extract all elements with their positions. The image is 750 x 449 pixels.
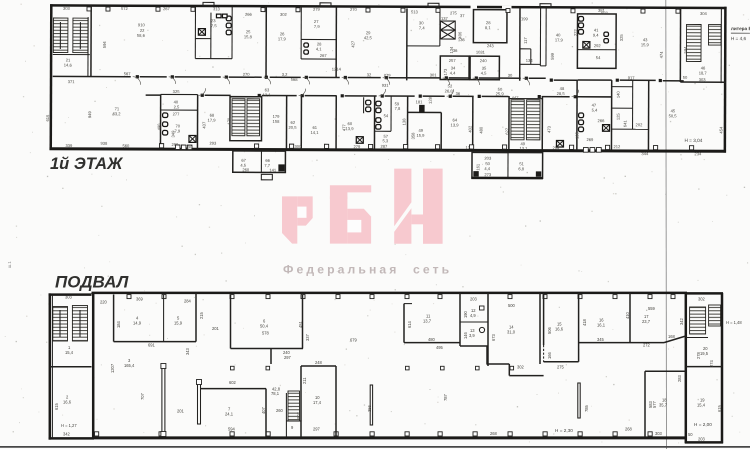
svg-text:277: 277 — [173, 111, 181, 116]
svg-text:13,9: 13,9 — [346, 126, 355, 131]
svg-text:140: 140 — [616, 91, 621, 99]
svg-text:50: 50 — [688, 432, 693, 437]
svg-text:ПОДВАЛ: ПОДВАЛ — [55, 273, 129, 292]
svg-text:473: 473 — [547, 125, 552, 133]
svg-text:17,9: 17,9 — [208, 118, 217, 123]
svg-text:4,1: 4,1 — [316, 47, 322, 52]
svg-text:297: 297 — [313, 427, 321, 432]
svg-text:13,7: 13,7 — [423, 319, 432, 324]
svg-text:201: 201 — [212, 326, 220, 331]
svg-text:949: 949 — [87, 111, 92, 119]
svg-text:304: 304 — [700, 11, 708, 16]
svg-text:201: 201 — [177, 409, 185, 414]
svg-text:275: 275 — [557, 365, 565, 370]
svg-text:16,6: 16,6 — [63, 400, 72, 405]
svg-text:477: 477 — [342, 124, 347, 132]
svg-text:Федеральная: Федеральная — [283, 263, 400, 277]
svg-text:Н = 2,30: Н = 2,30 — [555, 428, 573, 433]
svg-text:474: 474 — [659, 51, 664, 59]
svg-text:931: 931 — [382, 83, 390, 88]
svg-text:917: 917 — [628, 75, 636, 80]
svg-text:615: 615 — [54, 402, 59, 410]
svg-text:168: 168 — [668, 334, 676, 339]
svg-text:50,5: 50,5 — [669, 113, 678, 118]
svg-text:199: 199 — [521, 16, 529, 21]
svg-text:18,7: 18,7 — [699, 70, 708, 75]
svg-text:437: 437 — [202, 121, 207, 129]
svg-text:614: 614 — [407, 320, 412, 328]
svg-text:260: 260 — [276, 408, 284, 413]
svg-text:158: 158 — [273, 119, 281, 124]
svg-text:166: 166 — [547, 351, 552, 359]
svg-text:278: 278 — [696, 351, 701, 359]
svg-text:560: 560 — [122, 143, 130, 148]
svg-text:7,5: 7,5 — [211, 23, 217, 28]
svg-text:337: 337 — [305, 333, 310, 341]
svg-text:599: 599 — [550, 52, 555, 60]
svg-text:17,9: 17,9 — [278, 36, 287, 41]
svg-text:325: 325 — [619, 34, 624, 42]
svg-text:500: 500 — [508, 303, 516, 308]
svg-text:300: 300 — [294, 144, 302, 149]
svg-text:267: 267 — [320, 53, 328, 58]
svg-text:572: 572 — [121, 6, 129, 11]
svg-text:402: 402 — [468, 125, 473, 133]
svg-text:5,4: 5,4 — [592, 108, 598, 113]
svg-text:Н = 3,04: Н = 3,04 — [684, 138, 702, 143]
svg-text:292: 292 — [594, 43, 602, 48]
svg-text:356: 356 — [367, 404, 372, 412]
svg-text:13,9: 13,9 — [451, 123, 460, 128]
svg-text:594: 594 — [228, 427, 236, 432]
svg-text:615: 615 — [45, 114, 50, 122]
svg-text:345: 345 — [597, 337, 605, 342]
svg-text:454: 454 — [719, 126, 724, 134]
svg-text:1031: 1031 — [476, 50, 486, 55]
svg-text:240: 240 — [480, 58, 488, 63]
svg-text:691: 691 — [148, 343, 156, 348]
svg-text:16,1: 16,1 — [597, 323, 606, 328]
svg-text:447: 447 — [512, 95, 520, 100]
svg-text:202: 202 — [636, 122, 644, 127]
svg-text:190: 190 — [463, 310, 468, 318]
svg-text:1214: 1214 — [332, 67, 342, 72]
svg-text:303: 303 — [63, 6, 71, 11]
svg-text:195: 195 — [574, 131, 579, 139]
svg-text:451: 451 — [298, 320, 303, 328]
svg-text:146: 146 — [463, 331, 468, 339]
svg-text:7,8: 7,8 — [395, 106, 401, 111]
svg-text:20,5: 20,5 — [289, 125, 298, 130]
svg-text:173: 173 — [443, 68, 448, 76]
svg-text:литера Б: литера Б — [731, 26, 750, 31]
svg-text:222: 222 — [573, 28, 578, 36]
svg-text:1й ЭТАЖ: 1й ЭТАЖ — [50, 155, 124, 173]
svg-text:301: 301 — [430, 72, 438, 77]
svg-text:Н = 1,48: Н = 1,48 — [726, 320, 742, 325]
svg-text:Н = 2,00: Н = 2,00 — [694, 422, 712, 427]
svg-text:4,4: 4,4 — [450, 71, 456, 76]
svg-text:371: 371 — [68, 79, 76, 84]
svg-text:14,9: 14,9 — [133, 321, 142, 326]
svg-text:268: 268 — [625, 427, 633, 432]
svg-text:293: 293 — [209, 141, 217, 146]
svg-text:117: 117 — [523, 37, 528, 44]
svg-text:274: 274 — [709, 359, 714, 367]
svg-text:290: 290 — [185, 145, 193, 150]
svg-text:54: 54 — [596, 55, 601, 60]
svg-text:303: 303 — [65, 295, 73, 300]
svg-text:63,2: 63,2 — [113, 111, 122, 116]
svg-text:3,2: 3,2 — [282, 72, 288, 77]
svg-text:270: 270 — [350, 7, 358, 12]
svg-text:297: 297 — [284, 355, 292, 360]
svg-text:272: 272 — [643, 343, 651, 348]
svg-text:284: 284 — [184, 298, 192, 303]
svg-text:23,7: 23,7 — [642, 319, 651, 324]
svg-text:807: 807 — [296, 411, 301, 419]
svg-text:17,4: 17,4 — [313, 400, 322, 405]
svg-text:203: 203 — [484, 156, 492, 161]
svg-text:9: 9 — [291, 425, 294, 430]
svg-text:567: 567 — [124, 71, 132, 76]
svg-text:615: 615 — [717, 404, 722, 412]
svg-text:215: 215 — [199, 311, 204, 319]
svg-text:260: 260 — [242, 167, 250, 172]
svg-text:707: 707 — [140, 392, 145, 400]
svg-text:302: 302 — [280, 12, 288, 17]
svg-text:578: 578 — [262, 331, 270, 336]
svg-text:313: 313 — [213, 6, 221, 11]
svg-text:344: 344 — [641, 151, 649, 156]
svg-text:480: 480 — [428, 337, 436, 342]
svg-text:161: 161 — [475, 163, 480, 171]
svg-text:673: 673 — [491, 333, 496, 341]
svg-text:7,9: 7,9 — [314, 24, 320, 29]
svg-text:15,4: 15,4 — [697, 403, 706, 408]
svg-text:234: 234 — [694, 151, 702, 156]
svg-text:203: 203 — [698, 437, 706, 442]
svg-text:407: 407 — [261, 406, 266, 414]
svg-text:607: 607 — [601, 11, 609, 16]
svg-text:427: 427 — [350, 40, 355, 48]
svg-text:594: 594 — [102, 41, 107, 49]
svg-text:679: 679 — [350, 338, 358, 343]
svg-text:50: 50 — [683, 75, 688, 80]
svg-text:302: 302 — [517, 365, 525, 370]
svg-text:3,9: 3,9 — [469, 333, 475, 338]
svg-text:26,8: 26,8 — [445, 89, 454, 94]
svg-text:339: 339 — [65, 143, 73, 148]
svg-text:302: 302 — [698, 297, 706, 302]
svg-text:8,1: 8,1 — [485, 25, 491, 30]
svg-text:1207: 1207 — [110, 363, 115, 373]
svg-text:25,9: 25,9 — [496, 91, 505, 96]
svg-text:36: 36 — [456, 91, 461, 96]
svg-text:14,6: 14,6 — [64, 63, 73, 68]
svg-text:137: 137 — [441, 16, 449, 21]
svg-text:4,5: 4,5 — [481, 71, 487, 76]
svg-text:785: 785 — [584, 404, 589, 412]
svg-text:279: 279 — [353, 144, 361, 149]
svg-text:37: 37 — [460, 13, 465, 18]
svg-text:50,4: 50,4 — [260, 324, 269, 329]
svg-text:641: 641 — [623, 120, 628, 128]
svg-text:627: 627 — [505, 127, 510, 135]
svg-text:270: 270 — [243, 72, 251, 77]
svg-text:267: 267 — [163, 6, 171, 11]
svg-text:559: 559 — [648, 306, 656, 311]
svg-text:602: 602 — [229, 380, 237, 385]
svg-text:220: 220 — [100, 299, 108, 304]
svg-text:369: 369 — [136, 297, 144, 302]
svg-text:5,3: 5,3 — [382, 138, 388, 143]
svg-text:269: 269 — [586, 137, 594, 142]
svg-text:42,5: 42,5 — [364, 35, 373, 40]
svg-text:410: 410 — [625, 311, 630, 319]
svg-text:15,4: 15,4 — [65, 350, 74, 355]
svg-text:181: 181 — [416, 99, 424, 104]
svg-text:134: 134 — [526, 58, 534, 63]
svg-text:910: 910 — [138, 22, 146, 27]
svg-text:2,5: 2,5 — [174, 104, 180, 109]
svg-text:577: 577 — [652, 400, 657, 408]
svg-text:Н = 1,27: Н = 1,27 — [61, 423, 77, 428]
svg-text:58,6: 58,6 — [137, 33, 146, 38]
svg-text:279: 279 — [313, 7, 321, 12]
svg-text:15,8: 15,8 — [244, 34, 253, 39]
svg-text:495: 495 — [436, 345, 444, 350]
svg-text:273: 273 — [484, 172, 492, 177]
svg-text:24,1: 24,1 — [225, 412, 234, 417]
svg-text:283: 283 — [677, 374, 682, 382]
svg-text:342: 342 — [63, 432, 71, 437]
svg-text:15,9: 15,9 — [416, 133, 425, 138]
svg-text:184: 184 — [116, 320, 121, 328]
svg-text:138: 138 — [402, 118, 407, 126]
svg-text:28,5: 28,5 — [557, 91, 566, 96]
svg-text:343: 343 — [185, 347, 190, 355]
svg-text:243: 243 — [487, 43, 495, 48]
svg-text:125: 125 — [616, 113, 621, 121]
svg-text:6,8: 6,8 — [518, 166, 524, 171]
svg-text:128: 128 — [428, 96, 433, 104]
svg-text:257: 257 — [449, 58, 457, 63]
svg-text:141: 141 — [269, 168, 277, 173]
svg-text:203: 203 — [470, 297, 478, 302]
svg-text:266: 266 — [245, 12, 253, 17]
svg-text:275: 275 — [450, 11, 458, 16]
svg-text:9,4: 9,4 — [593, 33, 599, 38]
svg-text:13,1: 13,1 — [519, 146, 528, 151]
svg-text:170: 170 — [227, 117, 232, 125]
svg-text:7,4: 7,4 — [419, 25, 425, 30]
svg-text:212: 212 — [613, 144, 621, 149]
svg-text:12,1: 12,1 — [263, 92, 272, 97]
svg-text:15,9: 15,9 — [641, 42, 650, 47]
svg-text:15,9: 15,9 — [174, 321, 183, 326]
svg-text:303: 303 — [655, 431, 663, 436]
svg-text:136: 136 — [458, 37, 466, 42]
svg-text:568: 568 — [291, 77, 299, 82]
svg-text:35,7: 35,7 — [659, 403, 668, 408]
svg-text:211: 211 — [302, 377, 307, 384]
svg-text:30: 30 — [508, 73, 513, 78]
svg-text:342: 342 — [679, 317, 684, 325]
svg-text:17,9: 17,9 — [555, 37, 564, 42]
svg-text:сеть: сеть — [413, 263, 452, 277]
svg-text:165,4: 165,4 — [124, 363, 135, 368]
svg-text:36: 36 — [453, 48, 458, 53]
svg-text:513: 513 — [411, 9, 419, 14]
svg-text:ш.1: ш.1 — [7, 261, 12, 268]
svg-text:54: 54 — [384, 113, 389, 118]
svg-text:31,0: 31,0 — [507, 330, 516, 335]
svg-text:325: 325 — [173, 89, 181, 94]
svg-text:248: 248 — [315, 360, 323, 365]
svg-text:16,6: 16,6 — [555, 327, 564, 332]
svg-text:358: 358 — [410, 132, 415, 140]
svg-text:480: 480 — [479, 126, 484, 134]
svg-text:490: 490 — [157, 123, 162, 131]
svg-text:14,1: 14,1 — [311, 130, 320, 135]
svg-text:268: 268 — [490, 431, 498, 436]
svg-text:303: 303 — [699, 77, 707, 82]
svg-text:Н = 4,6: Н = 4,6 — [731, 36, 747, 41]
svg-text:19,5: 19,5 — [700, 351, 709, 356]
svg-text:418: 418 — [582, 318, 587, 326]
svg-text:938: 938 — [100, 141, 108, 146]
svg-text:266: 266 — [598, 118, 606, 123]
svg-text:506: 506 — [547, 326, 552, 334]
svg-text:787: 787 — [443, 393, 448, 401]
svg-text:4,4: 4,4 — [484, 166, 490, 171]
svg-text:32: 32 — [367, 72, 372, 77]
svg-text:78,1: 78,1 — [271, 391, 280, 396]
svg-text:4,9: 4,9 — [470, 313, 476, 318]
svg-text:594: 594 — [683, 46, 688, 54]
svg-text:287: 287 — [380, 144, 388, 149]
svg-text:349: 349 — [170, 130, 175, 138]
